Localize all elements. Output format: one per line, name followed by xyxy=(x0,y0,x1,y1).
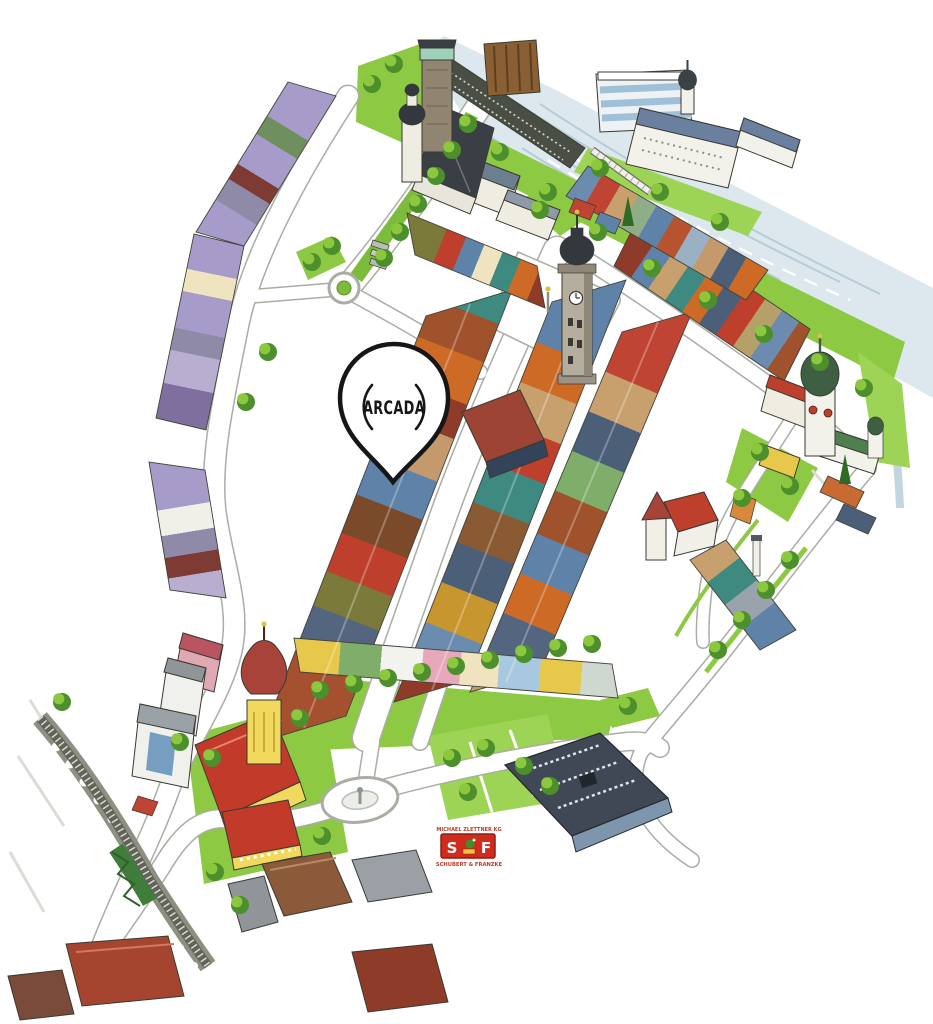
arcada-label: ARCADA xyxy=(363,397,425,419)
publisher-logo-s: S xyxy=(447,839,458,857)
map-credits: MICHAEL ZLETTNER KG S F SCHUBERT & FRANZ… xyxy=(436,827,503,868)
illustrated-city-map: ARCADA MICHAEL ZLETTNER KG S F SCHUBERT … xyxy=(0,0,933,1024)
marian-column xyxy=(545,286,550,291)
chimney xyxy=(753,540,760,576)
publisher-credit: SCHUBERT & FRANZKE xyxy=(436,862,503,868)
baroque-tower xyxy=(402,120,422,182)
gate-tower xyxy=(646,516,666,560)
red-onion-spire xyxy=(241,641,287,695)
monastery-onion-dome xyxy=(679,70,697,90)
publisher-logo-f: F xyxy=(481,839,491,857)
artist-credit: MICHAEL ZLETTNER KG xyxy=(436,827,501,833)
roundabout-north xyxy=(329,273,359,303)
map-canvas: ARCADA MICHAEL ZLETTNER KG S F SCHUBERT … xyxy=(0,0,933,1024)
